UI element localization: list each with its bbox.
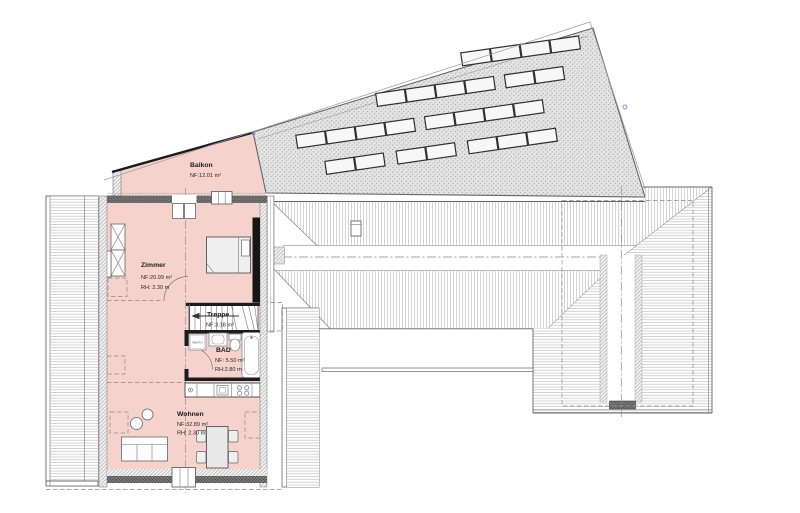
dining-table	[207, 427, 229, 469]
zimmer-area: NF:20.99 m²	[141, 275, 172, 281]
balcony	[112, 132, 266, 197]
floor-plan-page: WM/TU	[0, 0, 800, 513]
sofa	[122, 437, 168, 461]
chair	[229, 431, 239, 443]
coffee-table	[142, 409, 153, 420]
coffee-table	[131, 418, 143, 430]
balcony-door-leaf	[185, 204, 196, 219]
chair	[229, 452, 239, 464]
balkon-label: Balkon	[190, 162, 213, 169]
chair	[197, 452, 207, 464]
bad-height: RH:2.80 m	[215, 367, 242, 373]
washing-machine-label: WM/TU	[192, 341, 202, 345]
treppe-area: NF:3.18 m²	[206, 323, 234, 329]
left-wing-roof	[46, 196, 98, 486]
treppe-label: Treppe	[207, 312, 230, 319]
bottom-wall-chimney	[172, 468, 196, 488]
right-wall-section-cut	[253, 218, 261, 303]
bath-bottom-wall	[185, 378, 266, 382]
floor-plan-drawing: WM/TU	[0, 0, 800, 513]
kitchen	[185, 383, 260, 397]
lean-to-roof-hatch	[287, 308, 319, 487]
kitchen-sink-drain	[190, 389, 191, 390]
zimmer-label: Zimmer	[141, 262, 166, 269]
balcony-door-leaf	[173, 204, 184, 219]
bad-label: BAD	[216, 347, 231, 354]
gap-strip-left-band	[600, 255, 607, 402]
balcony-railing	[113, 171, 121, 197]
gap-strip-right-band	[635, 255, 642, 402]
wohnen-label: Wohnen	[177, 411, 204, 418]
stair-top-wall	[186, 303, 265, 306]
washing-machine: WM/TU	[189, 334, 206, 350]
toilet-bowl	[230, 339, 240, 351]
zimmer-height: RH: 2.30 m	[141, 285, 170, 291]
survey-marker-icon	[623, 105, 627, 109]
wohnen-area: NF:32.89 m²	[177, 422, 208, 428]
toilet	[229, 334, 241, 351]
balkon-area: NF:12.01 m²	[190, 173, 221, 179]
left-wing-roof-hatch	[50, 196, 98, 481]
bathtub	[242, 333, 261, 378]
balcony-door-opening	[172, 195, 197, 204]
gap-strip-chimney-block	[610, 401, 636, 409]
bed-pillow	[242, 240, 250, 256]
right-exterior-wall	[260, 196, 267, 487]
bed	[207, 237, 251, 273]
sink	[209, 333, 227, 346]
bad-area: NF: 5.50 m²	[215, 358, 245, 364]
wohnen-height: RH: 2.30 m	[177, 431, 206, 437]
left-exterior-wall	[99, 196, 107, 487]
bathtub-drain	[250, 336, 253, 339]
courtyard-wall-edge	[322, 368, 533, 372]
top-wall-chimney	[212, 192, 233, 205]
chimney	[351, 221, 361, 236]
bath-left-wall-upper	[185, 334, 189, 347]
